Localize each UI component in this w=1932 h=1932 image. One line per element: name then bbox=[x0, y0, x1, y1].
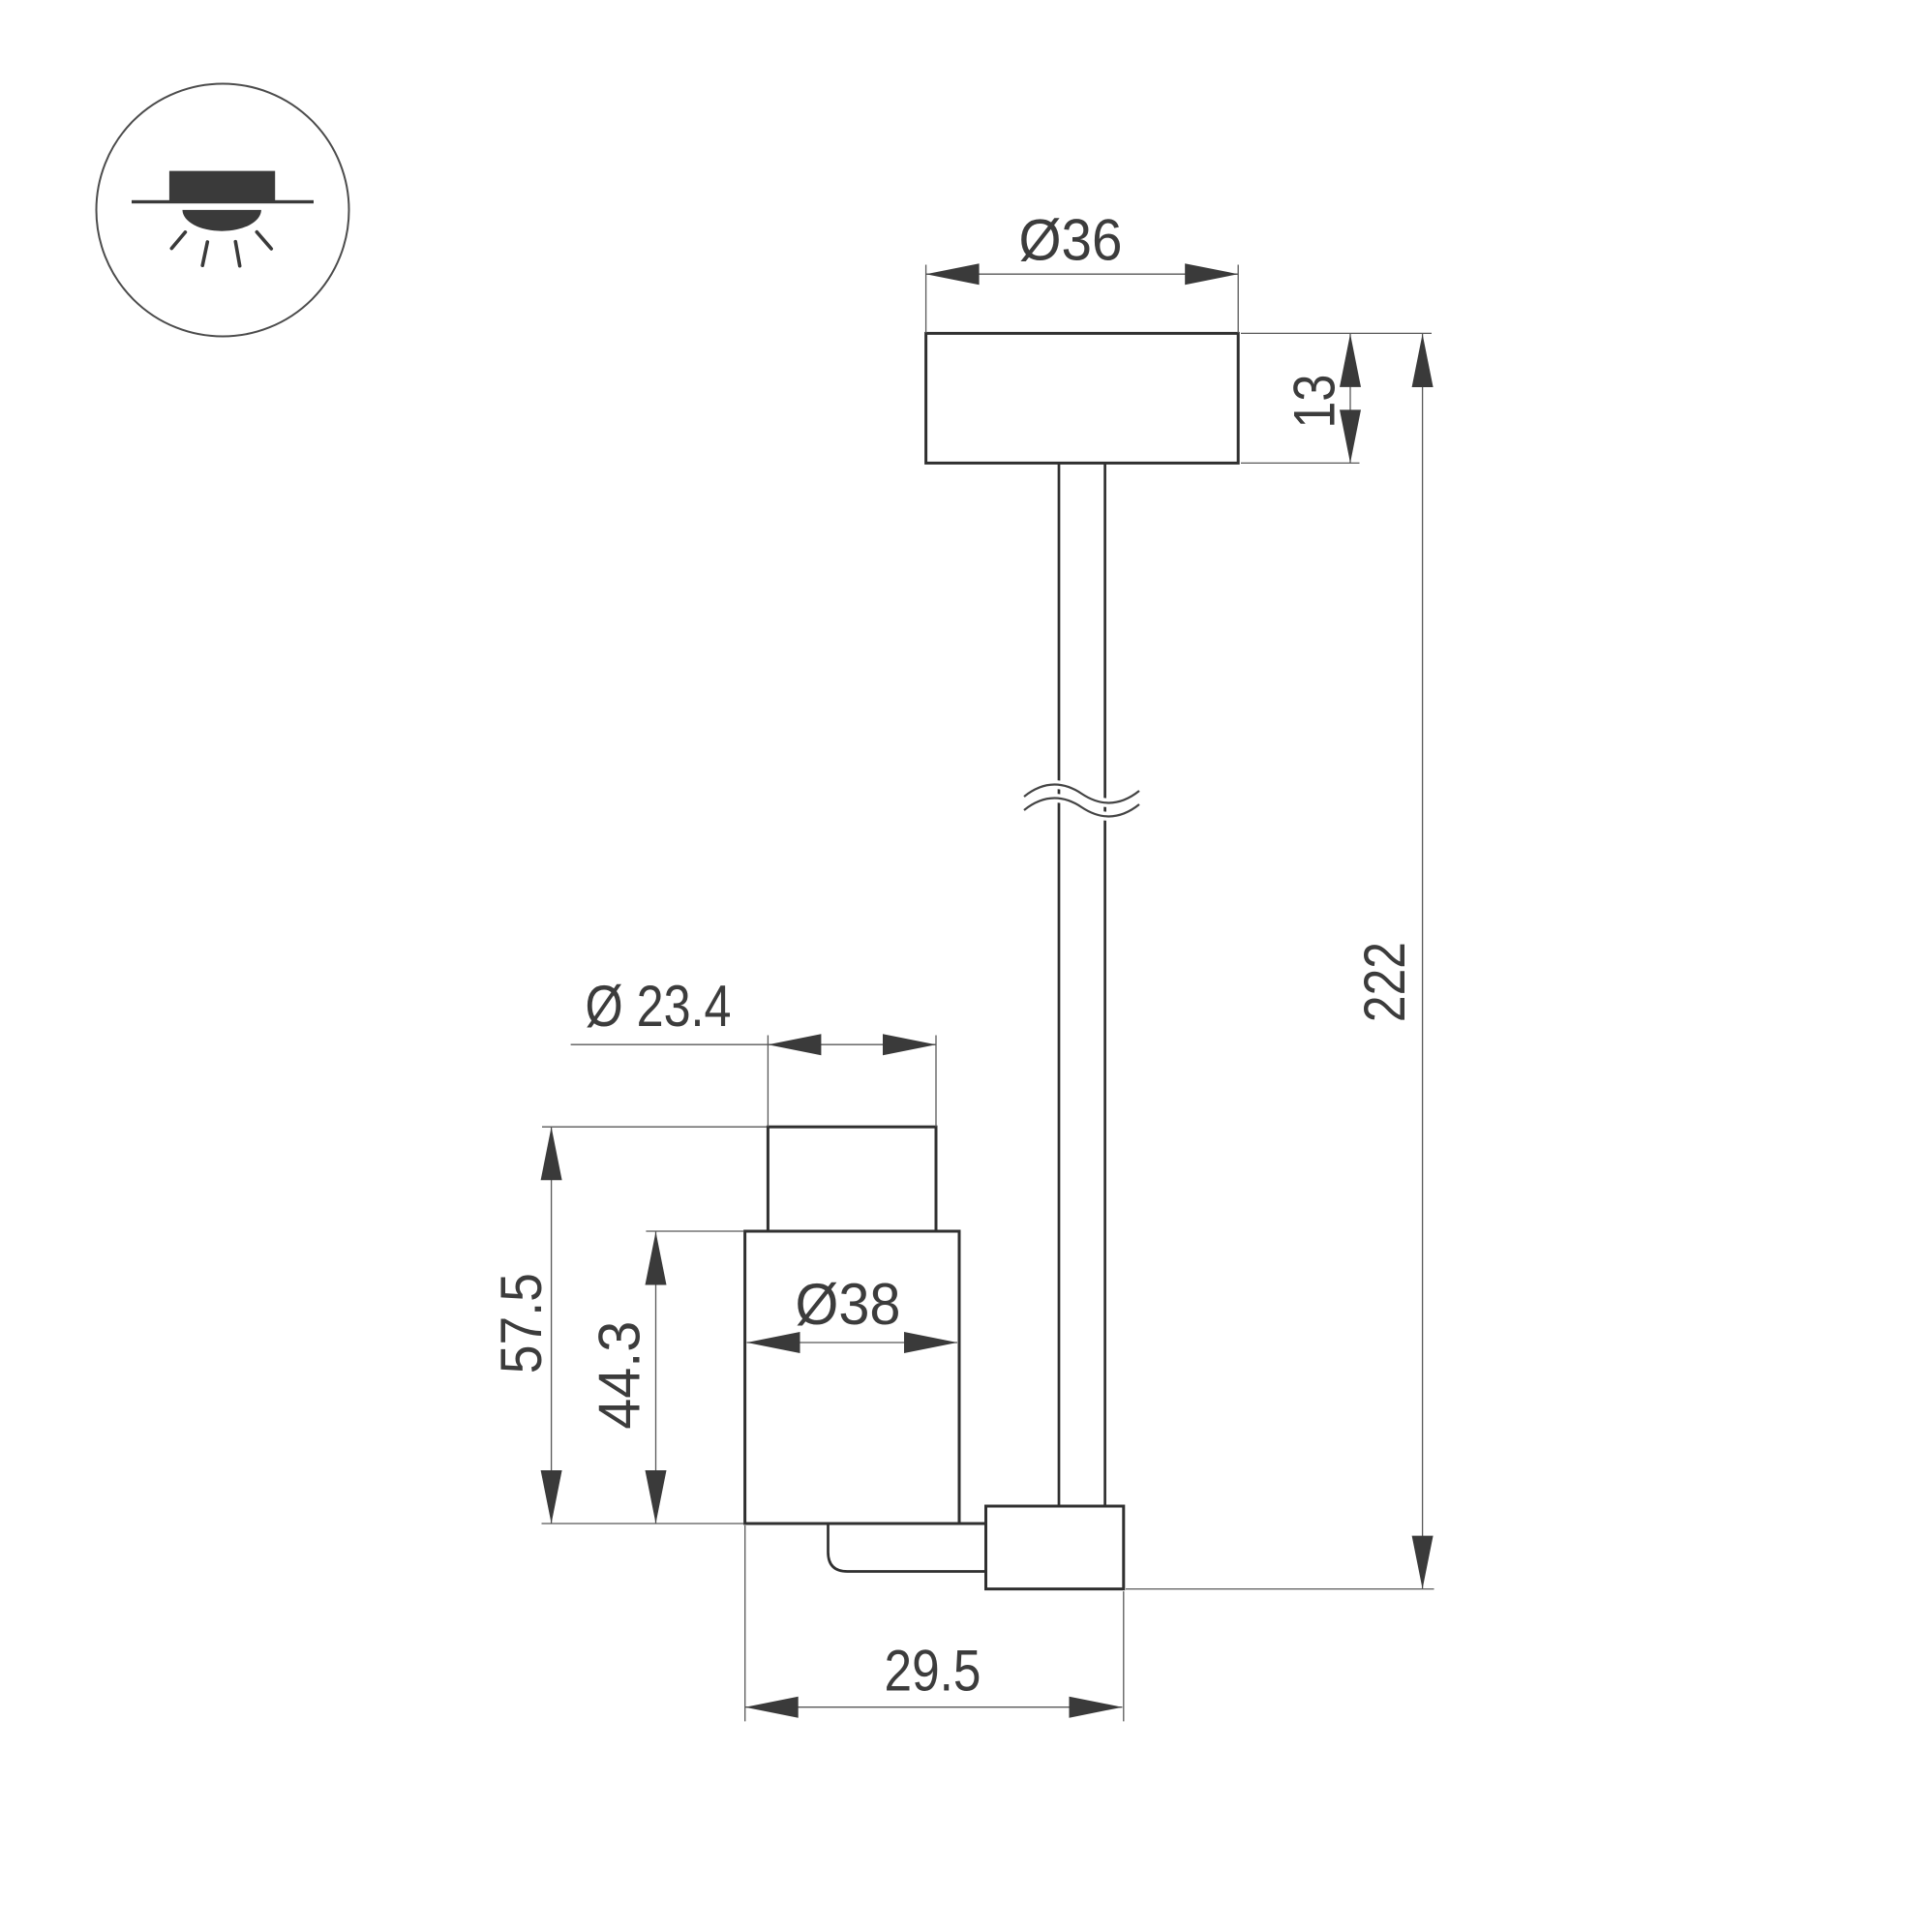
svg-text:57.5: 57.5 bbox=[489, 1273, 554, 1374]
svg-text:Ø38: Ø38 bbox=[796, 1272, 901, 1337]
svg-text:Ø36: Ø36 bbox=[1019, 208, 1123, 273]
svg-text:222: 222 bbox=[1352, 942, 1417, 1022]
svg-text:13: 13 bbox=[1283, 375, 1347, 429]
svg-text:Ø 23.4: Ø 23.4 bbox=[586, 974, 732, 1039]
svg-text:44.3: 44.3 bbox=[588, 1321, 652, 1430]
svg-text:29.5: 29.5 bbox=[885, 1639, 981, 1704]
